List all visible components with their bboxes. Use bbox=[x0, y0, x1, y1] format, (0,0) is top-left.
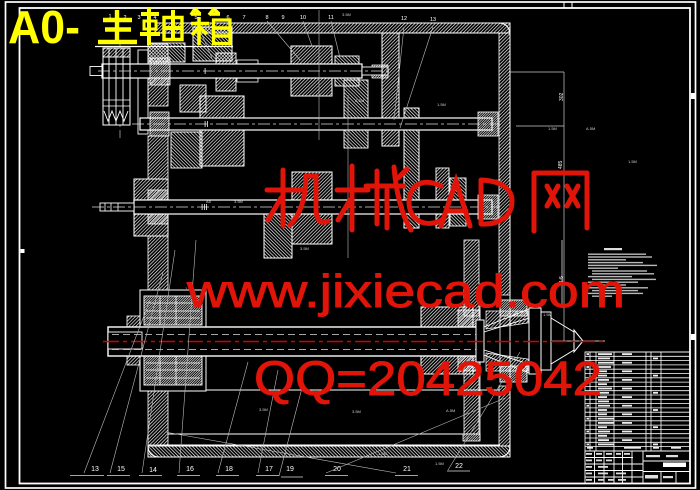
svg-text:485: 485 bbox=[558, 160, 564, 169]
svg-text:1.5M: 1.5M bbox=[437, 102, 446, 107]
svg-text:15: 15 bbox=[117, 466, 125, 473]
svg-text:21: 21 bbox=[403, 466, 411, 473]
svg-text:17: 17 bbox=[265, 466, 273, 473]
svg-text:11: 11 bbox=[328, 15, 334, 21]
svg-text:A5: A5 bbox=[206, 199, 212, 204]
svg-text:QQ=20425042: QQ=20425042 bbox=[254, 353, 602, 406]
svg-text:13: 13 bbox=[91, 466, 99, 473]
svg-text:1.5M: 1.5M bbox=[435, 461, 444, 466]
svg-text:A.5M: A.5M bbox=[446, 408, 455, 413]
svg-text:A.5M: A.5M bbox=[586, 126, 595, 131]
svg-text:3.5M: 3.5M bbox=[300, 246, 309, 251]
svg-text:3: 3 bbox=[137, 15, 140, 21]
svg-text:3.5M: 3.5M bbox=[234, 199, 243, 204]
svg-text:5: 5 bbox=[194, 15, 197, 21]
svg-text:I: I bbox=[204, 67, 206, 76]
svg-text:3.5M: 3.5M bbox=[342, 12, 351, 17]
svg-text:22: 22 bbox=[455, 463, 463, 470]
svg-text:19: 19 bbox=[286, 466, 294, 473]
svg-text:8: 8 bbox=[265, 15, 268, 21]
svg-text:3.5M: 3.5M bbox=[259, 407, 268, 412]
svg-text:12: 12 bbox=[401, 16, 407, 22]
svg-text:1.5M: 1.5M bbox=[378, 451, 387, 456]
svg-text:II: II bbox=[204, 120, 208, 129]
svg-text:13: 13 bbox=[430, 17, 436, 23]
svg-text:www.jixiecad.com: www.jixiecad.com bbox=[186, 265, 625, 317]
svg-text:1.5M: 1.5M bbox=[548, 126, 557, 131]
svg-text:16: 16 bbox=[186, 466, 194, 473]
svg-text:A.5M: A.5M bbox=[355, 98, 364, 103]
svg-text:9: 9 bbox=[281, 15, 284, 21]
svg-text:7: 7 bbox=[242, 15, 245, 21]
svg-text:14: 14 bbox=[149, 467, 157, 474]
svg-text:3.5M: 3.5M bbox=[352, 409, 361, 414]
svg-text:302: 302 bbox=[559, 92, 565, 101]
svg-text:1.5M: 1.5M bbox=[628, 159, 637, 164]
svg-text:18: 18 bbox=[225, 466, 233, 473]
svg-text:III: III bbox=[201, 203, 208, 212]
svg-text:10: 10 bbox=[300, 15, 306, 21]
svg-text:A0-: A0- bbox=[8, 1, 80, 53]
